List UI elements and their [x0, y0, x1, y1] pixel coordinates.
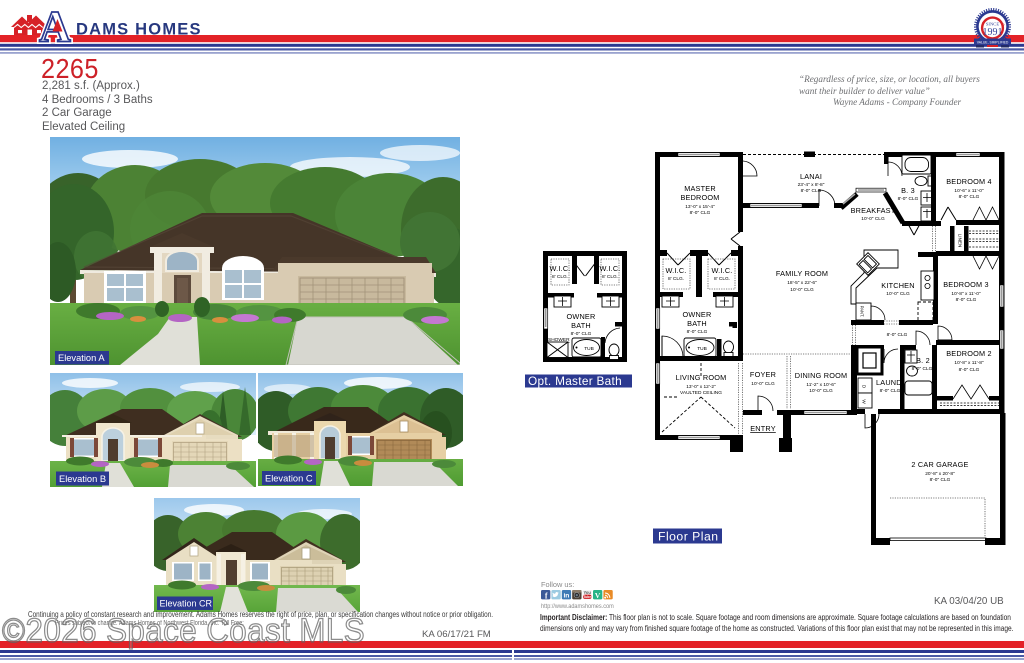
svg-text:10'-0" CLG: 10'-0" CLG: [886, 291, 910, 297]
svg-text:TUB: TUB: [697, 346, 707, 352]
svg-text:VAULTED CEILING: VAULTED CEILING: [680, 390, 722, 396]
svg-text:BEDROOM 3: BEDROOM 3: [943, 280, 989, 289]
svg-text:8'-0" CLG: 8'-0" CLG: [898, 196, 919, 202]
svg-text:Tube: Tube: [583, 595, 591, 599]
svg-text:in: in: [563, 593, 569, 600]
svg-text:LANAI: LANAI: [800, 172, 822, 181]
svg-text:FAMILY ROOM: FAMILY ROOM: [776, 269, 828, 278]
svg-text:ENTRY: ENTRY: [750, 424, 776, 433]
svg-text:DINING ROOM: DINING ROOM: [795, 371, 847, 380]
svg-text:SINCE: SINCE: [986, 22, 999, 27]
svg-text:Elevation CR: Elevation CR: [160, 599, 213, 609]
svg-text:8' CLG.: 8' CLG.: [668, 276, 684, 282]
svg-text:BREAKFAST: BREAKFAST: [851, 206, 896, 215]
svg-text:DAMS HOMES: DAMS HOMES: [76, 21, 202, 39]
svg-text:10'-0" CLG: 10'-0" CLG: [861, 216, 885, 222]
svg-text:Opt. Master Bath: Opt. Master Bath: [528, 374, 622, 388]
svg-text:1991: 1991: [983, 27, 1003, 38]
svg-text:8' CLG.: 8' CLG.: [714, 276, 730, 282]
svg-text:8'-0" CLG: 8'-0" CLG: [801, 188, 822, 194]
svg-text:OWNER: OWNER: [683, 310, 712, 319]
svg-text:B. 3: B. 3: [901, 186, 915, 195]
svg-text:23'-4" x 8'-8": 23'-4" x 8'-8": [798, 182, 825, 188]
svg-text:11'-2" x 10'-6": 11'-2" x 10'-6": [806, 382, 835, 388]
svg-text:8'-0" CLG: 8'-0" CLG: [959, 367, 980, 373]
svg-text:BEDROOM: BEDROOM: [680, 193, 719, 202]
svg-text:Elevation B: Elevation B: [59, 474, 106, 484]
svg-text:KITCHEN: KITCHEN: [881, 281, 914, 290]
svg-text:20'-8" x 20'-8": 20'-8" x 20'-8": [925, 471, 955, 477]
svg-text:8'-0" CLG: 8'-0" CLG: [571, 331, 592, 337]
svg-text:8'-0" CLG: 8'-0" CLG: [887, 332, 908, 338]
svg-text:10'-6" x 11'-0": 10'-6" x 11'-0": [954, 188, 983, 194]
svg-text:13'-0" x 15'-4": 13'-0" x 15'-4": [685, 204, 715, 210]
svg-text:Elevation A: Elevation A: [58, 353, 105, 363]
svg-text:FOYER: FOYER: [750, 370, 776, 379]
svg-text:8' CLG.: 8' CLG.: [552, 274, 568, 280]
svg-text:8'-0" CLG: 8'-0" CLG: [930, 477, 951, 483]
svg-text:8' CLG.: 8' CLG.: [602, 274, 618, 280]
svg-text:8'-0" CLG: 8'-0" CLG: [687, 329, 708, 335]
svg-text:BEDROOM 2: BEDROOM 2: [946, 349, 992, 358]
svg-text:B. 2: B. 2: [916, 356, 930, 365]
svg-text:8'-0" CLG: 8'-0" CLG: [959, 194, 980, 200]
svg-text:Elevation C: Elevation C: [265, 474, 313, 484]
svg-text:2 CAR GARAGE: 2 CAR GARAGE: [911, 460, 968, 469]
svg-text:PANT.: PANT.: [860, 306, 865, 318]
svg-text:BATH: BATH: [687, 319, 707, 328]
svg-text:W.I.C.: W.I.C.: [549, 264, 570, 273]
svg-text:8'-0" CLG: 8'-0" CLG: [956, 297, 977, 303]
svg-text:OWNER: OWNER: [567, 312, 596, 321]
svg-text:10'-8" x 11'-8": 10'-8" x 11'-8": [954, 360, 983, 366]
svg-text:18'-5" x 22'-6": 18'-5" x 22'-6": [787, 280, 817, 286]
svg-text:8'-0" CLG: 8'-0" CLG: [880, 388, 901, 394]
svg-text:LAUND.: LAUND.: [876, 378, 904, 387]
svg-text:Floor Plan: Floor Plan: [658, 530, 719, 544]
svg-text:W.I.C.: W.I.C.: [599, 264, 620, 273]
svg-text:W: W: [862, 399, 867, 404]
svg-text:TUB: TUB: [584, 346, 594, 352]
svg-text:MASTER: MASTER: [684, 184, 716, 193]
svg-text:8'-0" CLG: 8'-0" CLG: [912, 366, 933, 372]
svg-text:10'-8" x 11'-0": 10'-8" x 11'-0": [951, 291, 980, 297]
svg-text:LINEN: LINEN: [958, 234, 963, 248]
svg-text:BEDROOM 4: BEDROOM 4: [946, 177, 992, 186]
svg-text:10'-0" CLG: 10'-0" CLG: [790, 287, 814, 293]
svg-text:W.I.C.: W.I.C.: [711, 266, 732, 275]
svg-text:13'-0" x 12'-2": 13'-0" x 12'-2": [686, 384, 716, 390]
svg-text:10'-0" CLG: 10'-0" CLG: [809, 388, 833, 394]
svg-text:f: f: [545, 591, 548, 600]
svg-text:8'-0" CLG: 8'-0" CLG: [690, 210, 711, 216]
svg-text:10'-0" CLG: 10'-0" CLG: [751, 381, 775, 387]
svg-text:VALUE, SIMPLIFIED: VALUE, SIMPLIFIED: [977, 40, 1009, 44]
svg-text:BATH: BATH: [571, 321, 591, 330]
svg-text:W.I.C.: W.I.C.: [665, 266, 686, 275]
svg-text:V: V: [595, 591, 601, 600]
